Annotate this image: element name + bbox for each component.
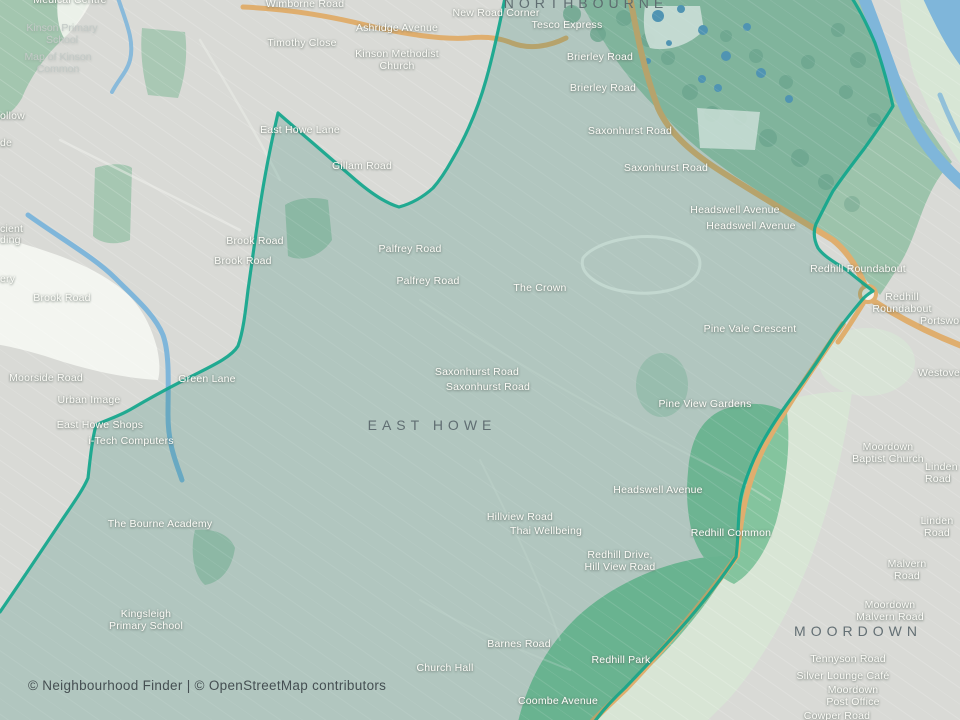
map-canvas[interactable]: NORTHBOURNEEAST HOWEMOORDOWNMedical Cent… [0,0,960,720]
map-base-layer [0,0,960,720]
attribution[interactable]: © Neighbourhood Finder | © OpenStreetMap… [28,678,386,693]
